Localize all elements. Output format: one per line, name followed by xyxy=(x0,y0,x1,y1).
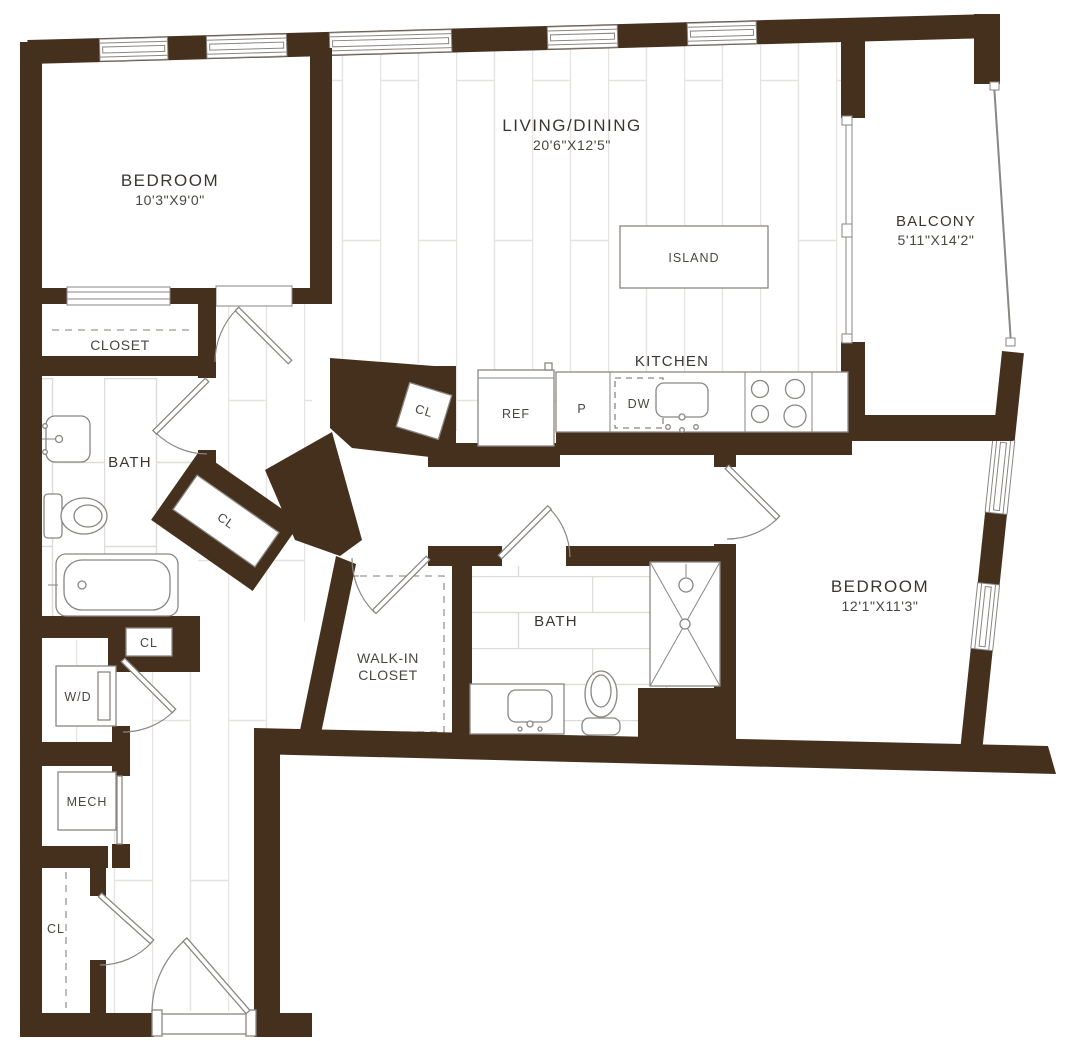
balcony-label: BALCONY xyxy=(896,213,976,230)
pantry-label: P xyxy=(577,402,586,416)
bath2-top-wall-left xyxy=(428,546,502,566)
bathtub xyxy=(48,554,178,616)
window xyxy=(985,438,1015,514)
top-right-corner-wall xyxy=(974,14,1000,84)
mechanical-label: MECH xyxy=(67,795,108,809)
mech-door xyxy=(117,776,122,844)
bath2-label: BATH xyxy=(534,613,578,630)
refrigerator-handle xyxy=(545,363,552,370)
living-dining-dims: 20'6"X12'5" xyxy=(533,137,611,153)
bedroom-1-living-divider xyxy=(310,48,332,298)
island-label: ISLAND xyxy=(668,251,719,265)
kitchen-back-wall xyxy=(556,431,852,455)
mech-right-stub-bottom xyxy=(112,844,130,868)
bath2-left-wall xyxy=(452,546,472,748)
walk-in-closet-label-1: WALK-IN xyxy=(357,650,419,666)
corridor-right-wall xyxy=(254,752,280,1037)
bedroom-2-right-wall xyxy=(959,351,1024,766)
window xyxy=(206,34,287,58)
entry-closet-stub-top xyxy=(90,862,106,896)
balcony-railing xyxy=(990,82,1015,346)
window xyxy=(687,21,757,45)
closet-bypass-opening xyxy=(67,287,170,305)
bath1-bottom-wall xyxy=(20,616,200,638)
bath2-vanity xyxy=(470,684,564,734)
window xyxy=(547,25,618,49)
laundry-right-stub xyxy=(112,726,130,748)
shower-head xyxy=(679,578,693,592)
kitchen-label: KITCHEN xyxy=(635,353,709,370)
balcony-dims: 5'11"X14'2" xyxy=(898,232,975,248)
living-dining-label: LIVING/DINING xyxy=(502,116,641,135)
closet-label: CLOSET xyxy=(90,337,150,353)
entry-closet-stub-bottom xyxy=(90,960,106,1015)
under-balcony-wall xyxy=(841,415,1013,441)
floor-plan: BEDROOM 10'3"X9'0" LIVING/DINING 20'6"X1… xyxy=(0,0,1080,1041)
closet-bottom-wall xyxy=(20,356,216,376)
window xyxy=(99,37,168,61)
walk-in-closet-label-2: CLOSET xyxy=(358,667,418,683)
laundry-label: W/D xyxy=(64,690,91,704)
entry-closet-label: CL xyxy=(47,922,65,936)
walk-in-closet-door xyxy=(352,556,430,613)
window xyxy=(329,30,452,55)
balcony-divider-top-stub xyxy=(841,26,865,118)
bath1-right-wall-upper xyxy=(198,288,216,378)
bath2-toilet xyxy=(582,671,620,735)
bedroom-2-dims: 12'1"X11'3" xyxy=(842,598,919,614)
refrigerator-label: REF xyxy=(502,407,530,421)
kitchen-faucet xyxy=(679,414,685,420)
window xyxy=(971,583,1000,651)
below-shower-wall xyxy=(638,688,736,748)
dishwasher-label: DW xyxy=(628,397,651,411)
kitchen-sink xyxy=(656,383,708,417)
left-wall xyxy=(20,42,42,1037)
bedroom-1-door-opening xyxy=(216,286,292,306)
bedroom-2-left-wall-stub xyxy=(714,455,736,467)
bedroom-2-label: BEDROOM xyxy=(831,577,929,596)
bath2-door xyxy=(498,506,570,559)
bath1-sink xyxy=(42,416,90,462)
floor-plan-page: BEDROOM 10'3"X9'0" LIVING/DINING 20'6"X1… xyxy=(0,0,1080,1041)
bedroom-2-door xyxy=(725,465,779,539)
shower xyxy=(650,562,720,686)
linen-closet-label: CL xyxy=(140,636,158,650)
bath1-label: BATH xyxy=(108,454,152,471)
bedroom-1-label: BEDROOM xyxy=(121,171,219,190)
bedroom-1-dims: 10'3"X9'0" xyxy=(135,192,205,208)
